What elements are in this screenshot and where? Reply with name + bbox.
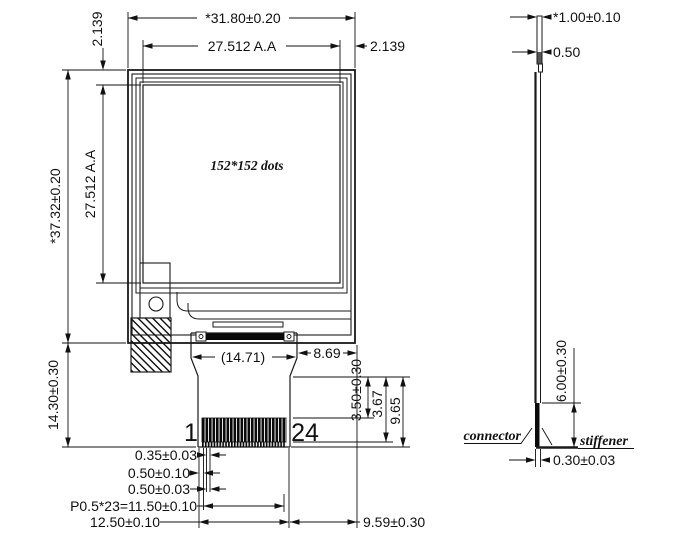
fpc-width-label: (14.71)	[221, 349, 265, 365]
fpc-right-offset-label: 8.69	[313, 345, 340, 361]
side-arrowheads	[526, 14, 577, 463]
polarizer-edge	[538, 52, 542, 64]
overall-height-label: *37.32±0.20	[47, 168, 63, 244]
tail-length-label: 9.65	[387, 397, 403, 424]
front-dimension-lines	[62, 12, 410, 528]
contact-pins	[202, 418, 286, 442]
front-labels: *31.80±0.20 27.512 A.A 2.139 2.139 *37.3…	[45, 10, 425, 530]
aa-height-label: 27.512 A.A	[82, 149, 98, 218]
bond-pad-right	[284, 332, 294, 341]
bond-pad-left	[196, 332, 206, 341]
left-extension-lines	[62, 70, 196, 447]
side-labels: *1.00±0.10 0.50 6.00±0.30 connector stif…	[463, 9, 628, 468]
active-area	[143, 85, 340, 283]
pad-width-label: 0.35±0.03	[135, 447, 197, 463]
overall-width-label: *31.80±0.20	[205, 10, 281, 26]
contact-width-label: 12.50±0.10	[90, 514, 160, 530]
lcd-outline-drawing: *31.80±0.20 27.512 A.A 2.139 2.139 *37.3…	[0, 0, 680, 541]
pad-pitch-label: 0.50±0.03	[128, 481, 190, 497]
border-top-label: 2.139	[89, 11, 105, 46]
connector-block	[535, 403, 540, 447]
seal-frame	[136, 78, 347, 293]
resolution-label: 152*152 dots	[210, 158, 283, 173]
connector-depth-label: 6.00±0.30	[553, 340, 569, 402]
glass-step	[539, 64, 543, 72]
connector-label: connector	[463, 429, 521, 444]
stiffener-label: stiffener	[579, 434, 629, 449]
side-view	[464, 16, 634, 449]
total-thickness-label: *1.00±0.10	[553, 9, 621, 25]
viewing-area-frame	[140, 82, 343, 288]
glass-thickness-label: 0.50	[553, 44, 580, 60]
pin-last-label: 24	[291, 419, 319, 447]
aa-width-label: 27.512 A.A	[208, 38, 277, 54]
stiffener-strip	[213, 322, 283, 327]
pin-first-label: 1	[184, 419, 198, 447]
fpc-thickness-label: 0.30±0.03	[553, 452, 615, 468]
side-dimension-lines	[509, 14, 581, 467]
pad-edge-gap-label: 0.50±0.10	[128, 465, 190, 481]
border-right-label: 2.139	[370, 38, 405, 54]
hatched-tape-block	[131, 318, 171, 372]
side-top-leader-lines	[510, 17, 528, 52]
fpc-bottom-length-label: 14.30±0.30	[45, 360, 61, 430]
pin-tick-lines	[204, 448, 211, 510]
fpc-fold-line-outer	[177, 292, 351, 311]
stiffener-pointer-line	[542, 428, 552, 445]
contact-length-label: 3.50±0.30	[348, 359, 364, 421]
dim-line-fpc-thickness	[509, 449, 541, 467]
module-outline	[128, 70, 355, 343]
contact-length-tip-label: 3.67	[369, 390, 385, 417]
corner-pad-region	[140, 263, 170, 318]
contact-teeth	[202, 442, 286, 448]
front-view	[128, 70, 355, 448]
bonding-bar	[206, 334, 284, 341]
alignment-hole	[149, 297, 163, 311]
pitch-total-label: P0.5*23=11.50±0.10	[70, 498, 197, 514]
panel-frame	[132, 74, 351, 335]
tail-right-offset-label: 9.59±0.30	[363, 514, 425, 530]
